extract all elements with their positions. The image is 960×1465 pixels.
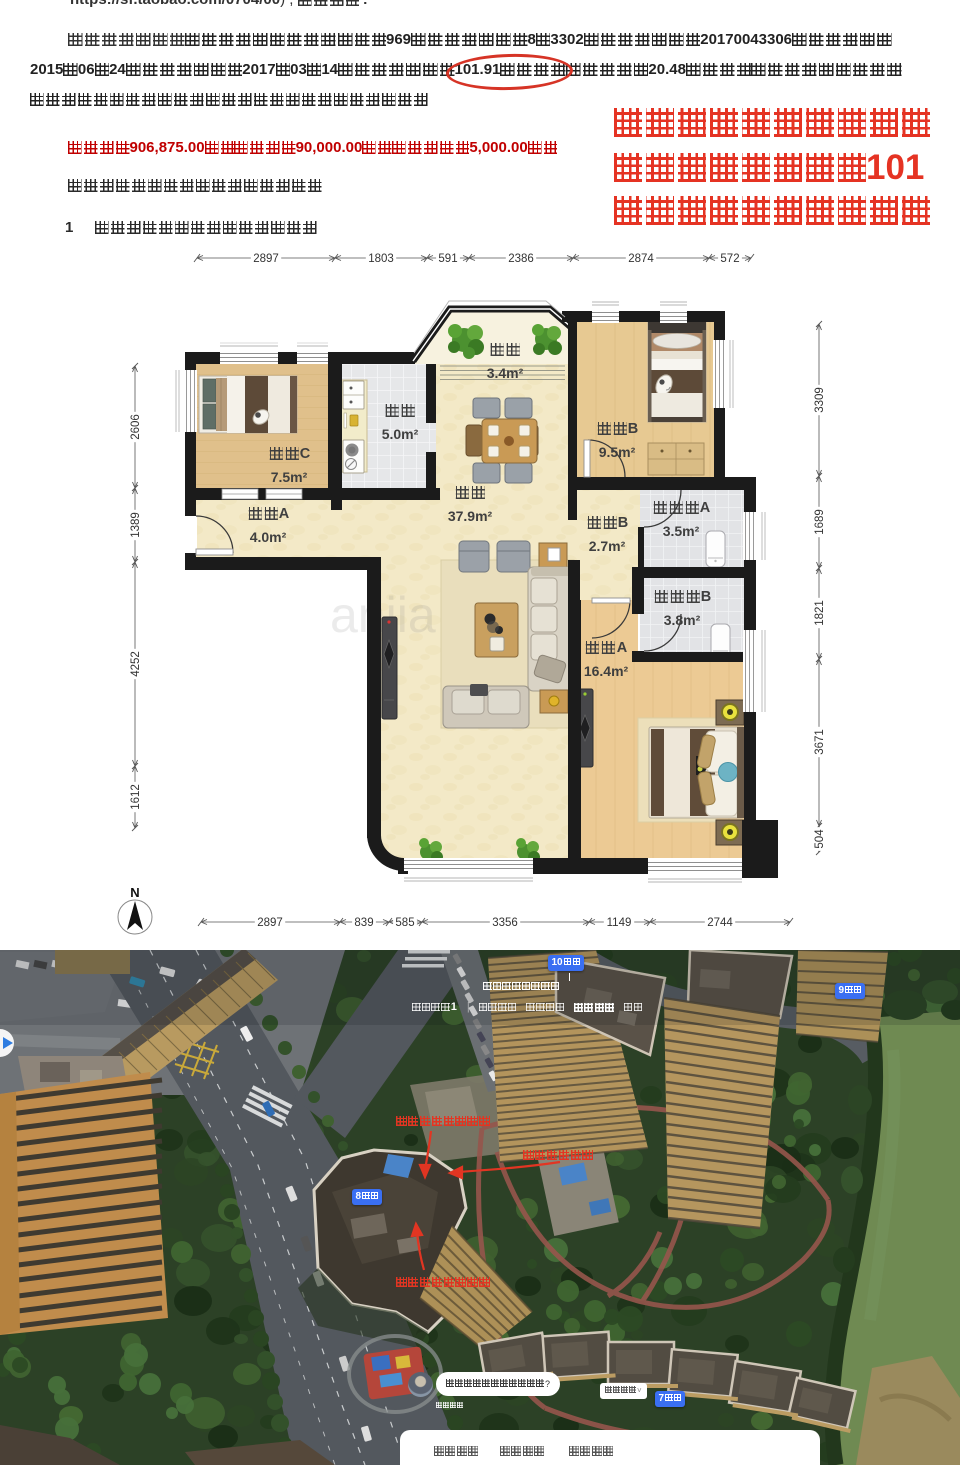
svg-text:585: 585 [395,917,414,929]
svg-text:1389: 1389 [130,512,142,538]
svg-text:2386: 2386 [508,253,534,265]
svg-text:504: 504 [814,829,826,849]
svg-text:839: 839 [354,917,373,929]
svg-text:3356: 3356 [492,917,518,929]
svg-text:3309: 3309 [814,387,826,413]
svg-text:1612: 1612 [130,784,142,810]
svg-text:2897: 2897 [253,253,279,265]
svg-text:2744: 2744 [707,917,733,929]
svg-text:1689: 1689 [814,509,826,535]
svg-text:1149: 1149 [607,917,632,929]
svg-text:591: 591 [438,253,457,265]
svg-text:572: 572 [720,253,739,265]
svg-text:N: N [130,885,139,900]
svg-text:2897: 2897 [257,917,283,929]
svg-text:2606: 2606 [130,414,142,440]
svg-text:1821: 1821 [814,600,826,626]
svg-text:1803: 1803 [368,253,394,265]
svg-text:2874: 2874 [628,253,654,265]
svg-text:4252: 4252 [130,651,142,677]
svg-text:3671: 3671 [814,729,826,755]
